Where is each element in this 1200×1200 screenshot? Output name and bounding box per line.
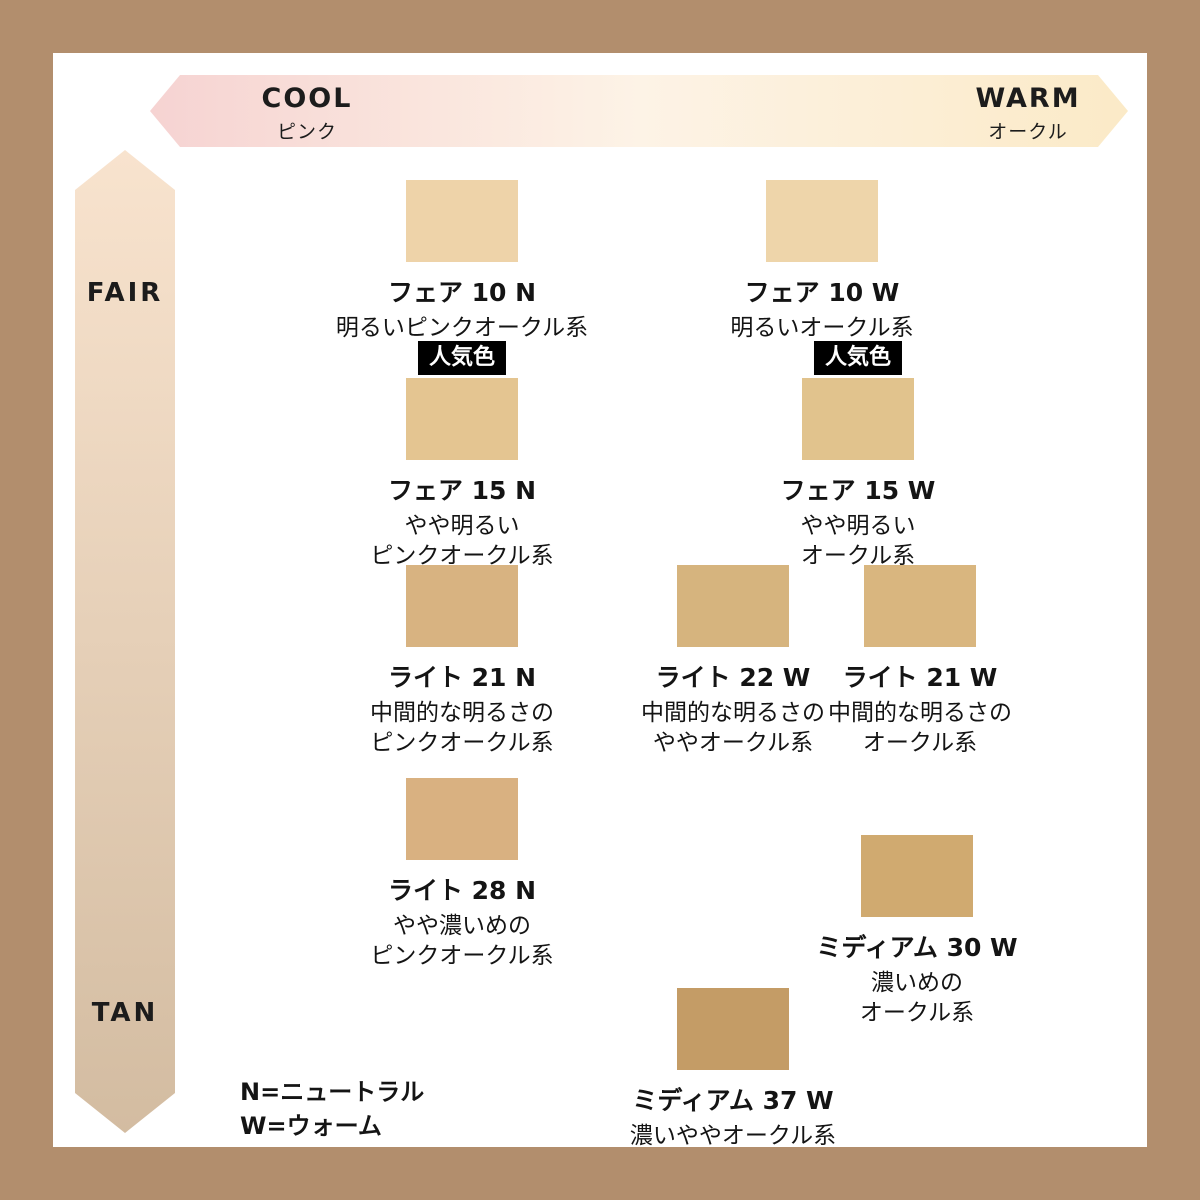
legend: N=ニュートラル W=ウォーム — [240, 1076, 424, 1143]
shade-description: やや濃いめの ピンクオークル系 — [322, 911, 602, 972]
shade-name: ライト 28 N — [322, 876, 602, 906]
shade-swatch — [864, 565, 976, 647]
shade-swatch — [861, 835, 973, 917]
shade-item-fair-10-w: フェア 10 W 明るいオークル系 — [682, 180, 962, 343]
shade-swatch — [406, 565, 518, 647]
legend-warm: W=ウォーム — [240, 1110, 424, 1144]
cool-label: COOL — [227, 84, 387, 114]
axis-label-cool: COOL ピンク — [227, 84, 387, 144]
shade-description: やや明るい ピンクオークル系 — [322, 511, 602, 572]
shade-description: 中間的な明るさの ピンクオークル系 — [322, 698, 602, 759]
shade-item-light-21-w: ライト 21 W 中間的な明るさの オークル系 — [780, 565, 1060, 759]
shade-item-fair-15-w: 人気色 フェア 15 W やや明るい オークル系 — [718, 378, 998, 572]
cool-warm-axis-arrow: COOL ピンク WARM オークル — [150, 75, 1128, 147]
shade-description: 濃いややオークル系 — [593, 1121, 873, 1151]
axis-label-warm: WARM オークル — [948, 84, 1108, 144]
popular-badge: 人気色 — [814, 341, 902, 375]
shade-item-light-28-n: ライト 28 N やや濃いめの ピンクオークル系 — [322, 778, 602, 972]
shade-name: フェア 15 W — [718, 476, 998, 506]
shade-swatch — [406, 778, 518, 860]
shade-swatch — [677, 988, 789, 1070]
shade-name: ミディアム 37 W — [593, 1086, 873, 1116]
shade-name: フェア 10 W — [682, 278, 962, 308]
shade-chart: COOL ピンク WARM オークル FAIR TAN フェア 10 N 明るい… — [0, 0, 1200, 1200]
shade-name: フェア 15 N — [322, 476, 602, 506]
shade-swatch — [766, 180, 878, 262]
shade-name: ライト 21 W — [780, 663, 1060, 693]
shade-name: フェア 10 N — [322, 278, 602, 308]
shade-swatch — [677, 565, 789, 647]
shade-item-fair-15-n: 人気色 フェア 15 N やや明るい ピンクオークル系 — [322, 378, 602, 572]
shade-swatch — [406, 378, 518, 460]
warm-sublabel: オークル — [948, 117, 1108, 144]
shade-name: ライト 21 N — [322, 663, 602, 693]
shade-item-medium-37-w: ミディアム 37 W 濃いややオークル系 — [593, 988, 873, 1151]
legend-neutral: N=ニュートラル — [240, 1076, 424, 1110]
cool-sublabel: ピンク — [227, 117, 387, 144]
axis-label-fair: FAIR — [75, 278, 175, 308]
shade-description: やや明るい オークル系 — [718, 511, 998, 572]
shade-description: 明るいピンクオークル系 — [322, 313, 602, 343]
axis-label-tan: TAN — [75, 998, 175, 1028]
warm-label: WARM — [948, 84, 1108, 114]
shade-item-light-21-n: ライト 21 N 中間的な明るさの ピンクオークル系 — [322, 565, 602, 759]
shade-name: ミディアム 30 W — [777, 933, 1057, 963]
popular-badge: 人気色 — [418, 341, 506, 375]
shade-swatch — [406, 180, 518, 262]
shade-swatch — [802, 378, 914, 460]
shade-description: 中間的な明るさの オークル系 — [780, 698, 1060, 759]
shade-description: 明るいオークル系 — [682, 313, 962, 343]
shade-item-fair-10-n: フェア 10 N 明るいピンクオークル系 — [322, 180, 602, 343]
